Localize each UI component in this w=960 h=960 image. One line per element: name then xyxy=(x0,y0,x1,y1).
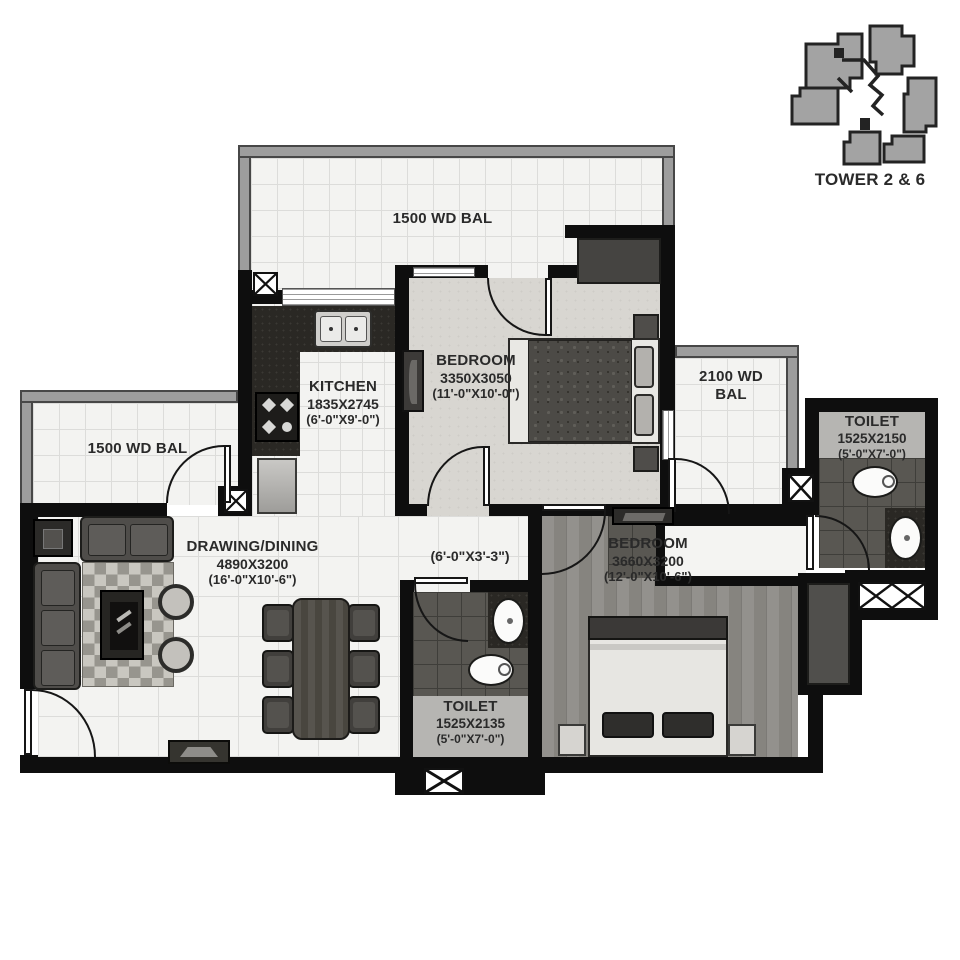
dining-chair xyxy=(348,604,380,642)
wardrobe xyxy=(807,583,850,685)
round-table xyxy=(158,637,194,673)
kitchen-label: KITCHEN 1835X2745 (6'-0"X9'-0") xyxy=(288,378,398,428)
shaft-icon xyxy=(424,768,464,794)
wall xyxy=(20,401,33,505)
tv-unit xyxy=(612,507,674,525)
dining-chair xyxy=(348,696,380,734)
wc-icon xyxy=(468,654,514,686)
door-leaf xyxy=(224,445,231,503)
tower-keyplan-icon xyxy=(790,18,950,166)
tv-unit xyxy=(33,519,73,557)
side-table xyxy=(633,314,659,340)
wall xyxy=(400,580,414,592)
wall xyxy=(20,390,238,403)
side-table xyxy=(633,446,659,472)
bedroom1-side-window xyxy=(662,410,674,460)
side-table xyxy=(558,724,586,756)
shaft-icon xyxy=(788,474,814,502)
door-leaf xyxy=(806,515,814,570)
vent-ledge-icon xyxy=(858,582,926,610)
wall xyxy=(400,580,413,773)
toilet-top-label: TOILET 1525X2150 (5'-0"X7'-0") xyxy=(819,413,925,461)
balcony-right-label: 2100 WD BAL xyxy=(678,368,784,403)
door-leaf xyxy=(545,278,552,336)
wall xyxy=(238,156,251,272)
bed xyxy=(588,616,728,757)
washbasin-icon xyxy=(889,516,922,560)
dining-chair xyxy=(348,650,380,688)
bedroom2-label: BEDROOM 3660X3200 (12'-0"X10'-6") xyxy=(563,535,733,585)
door-leaf xyxy=(542,504,606,511)
dining-chair xyxy=(262,696,294,734)
kitchen-window xyxy=(282,288,395,306)
fridge-icon xyxy=(257,458,297,514)
wall xyxy=(798,585,807,683)
wall xyxy=(238,145,675,158)
door-leaf xyxy=(668,458,676,512)
dining-chair xyxy=(262,650,294,688)
bedroom1-label: BEDROOM 3350X3050 (11'-0"X10'-0") xyxy=(410,352,542,402)
door-leaf xyxy=(414,577,468,584)
coffee-table xyxy=(100,590,144,660)
wall xyxy=(238,270,252,516)
washbasin-icon xyxy=(492,598,525,644)
wc-icon xyxy=(852,466,898,498)
toilet-bottom-label: TOILET 1525X2135 (5'-0"X7'-0") xyxy=(413,698,528,746)
wall xyxy=(470,580,542,592)
floor-plan: 1500 WD BAL 1500 WD BAL 2100 WD BAL BEDR… xyxy=(0,0,960,960)
entrance-door-leaf xyxy=(24,689,32,755)
shaft-icon xyxy=(253,272,278,296)
tower-label: TOWER 2 & 6 xyxy=(792,170,948,190)
drawing-dining-label: DRAWING/DINING 4890X3200 (16'-0"X10'-6") xyxy=(150,538,355,588)
wall xyxy=(675,345,799,358)
sofa xyxy=(33,562,81,690)
wall xyxy=(925,574,938,620)
wall xyxy=(786,356,799,470)
wall xyxy=(20,503,167,517)
passage-label: (6'-0"X3'-3") xyxy=(405,548,535,565)
wall xyxy=(528,504,542,771)
door-leaf xyxy=(483,446,490,506)
wall xyxy=(925,398,938,574)
side-table xyxy=(728,724,756,756)
bedroom1-window xyxy=(413,267,475,277)
wardrobe xyxy=(577,238,661,284)
balcony-left-label: 1500 WD BAL xyxy=(55,440,220,458)
wall xyxy=(395,504,427,516)
round-table xyxy=(158,584,194,620)
dining-table xyxy=(292,598,350,740)
balcony-top-label: 1500 WD BAL xyxy=(350,210,535,228)
wall xyxy=(565,225,675,238)
wall xyxy=(662,156,675,228)
doormat xyxy=(168,740,230,764)
wall xyxy=(395,770,545,795)
dining-chair xyxy=(262,604,294,642)
sink-icon xyxy=(314,310,372,348)
wall xyxy=(805,398,938,412)
